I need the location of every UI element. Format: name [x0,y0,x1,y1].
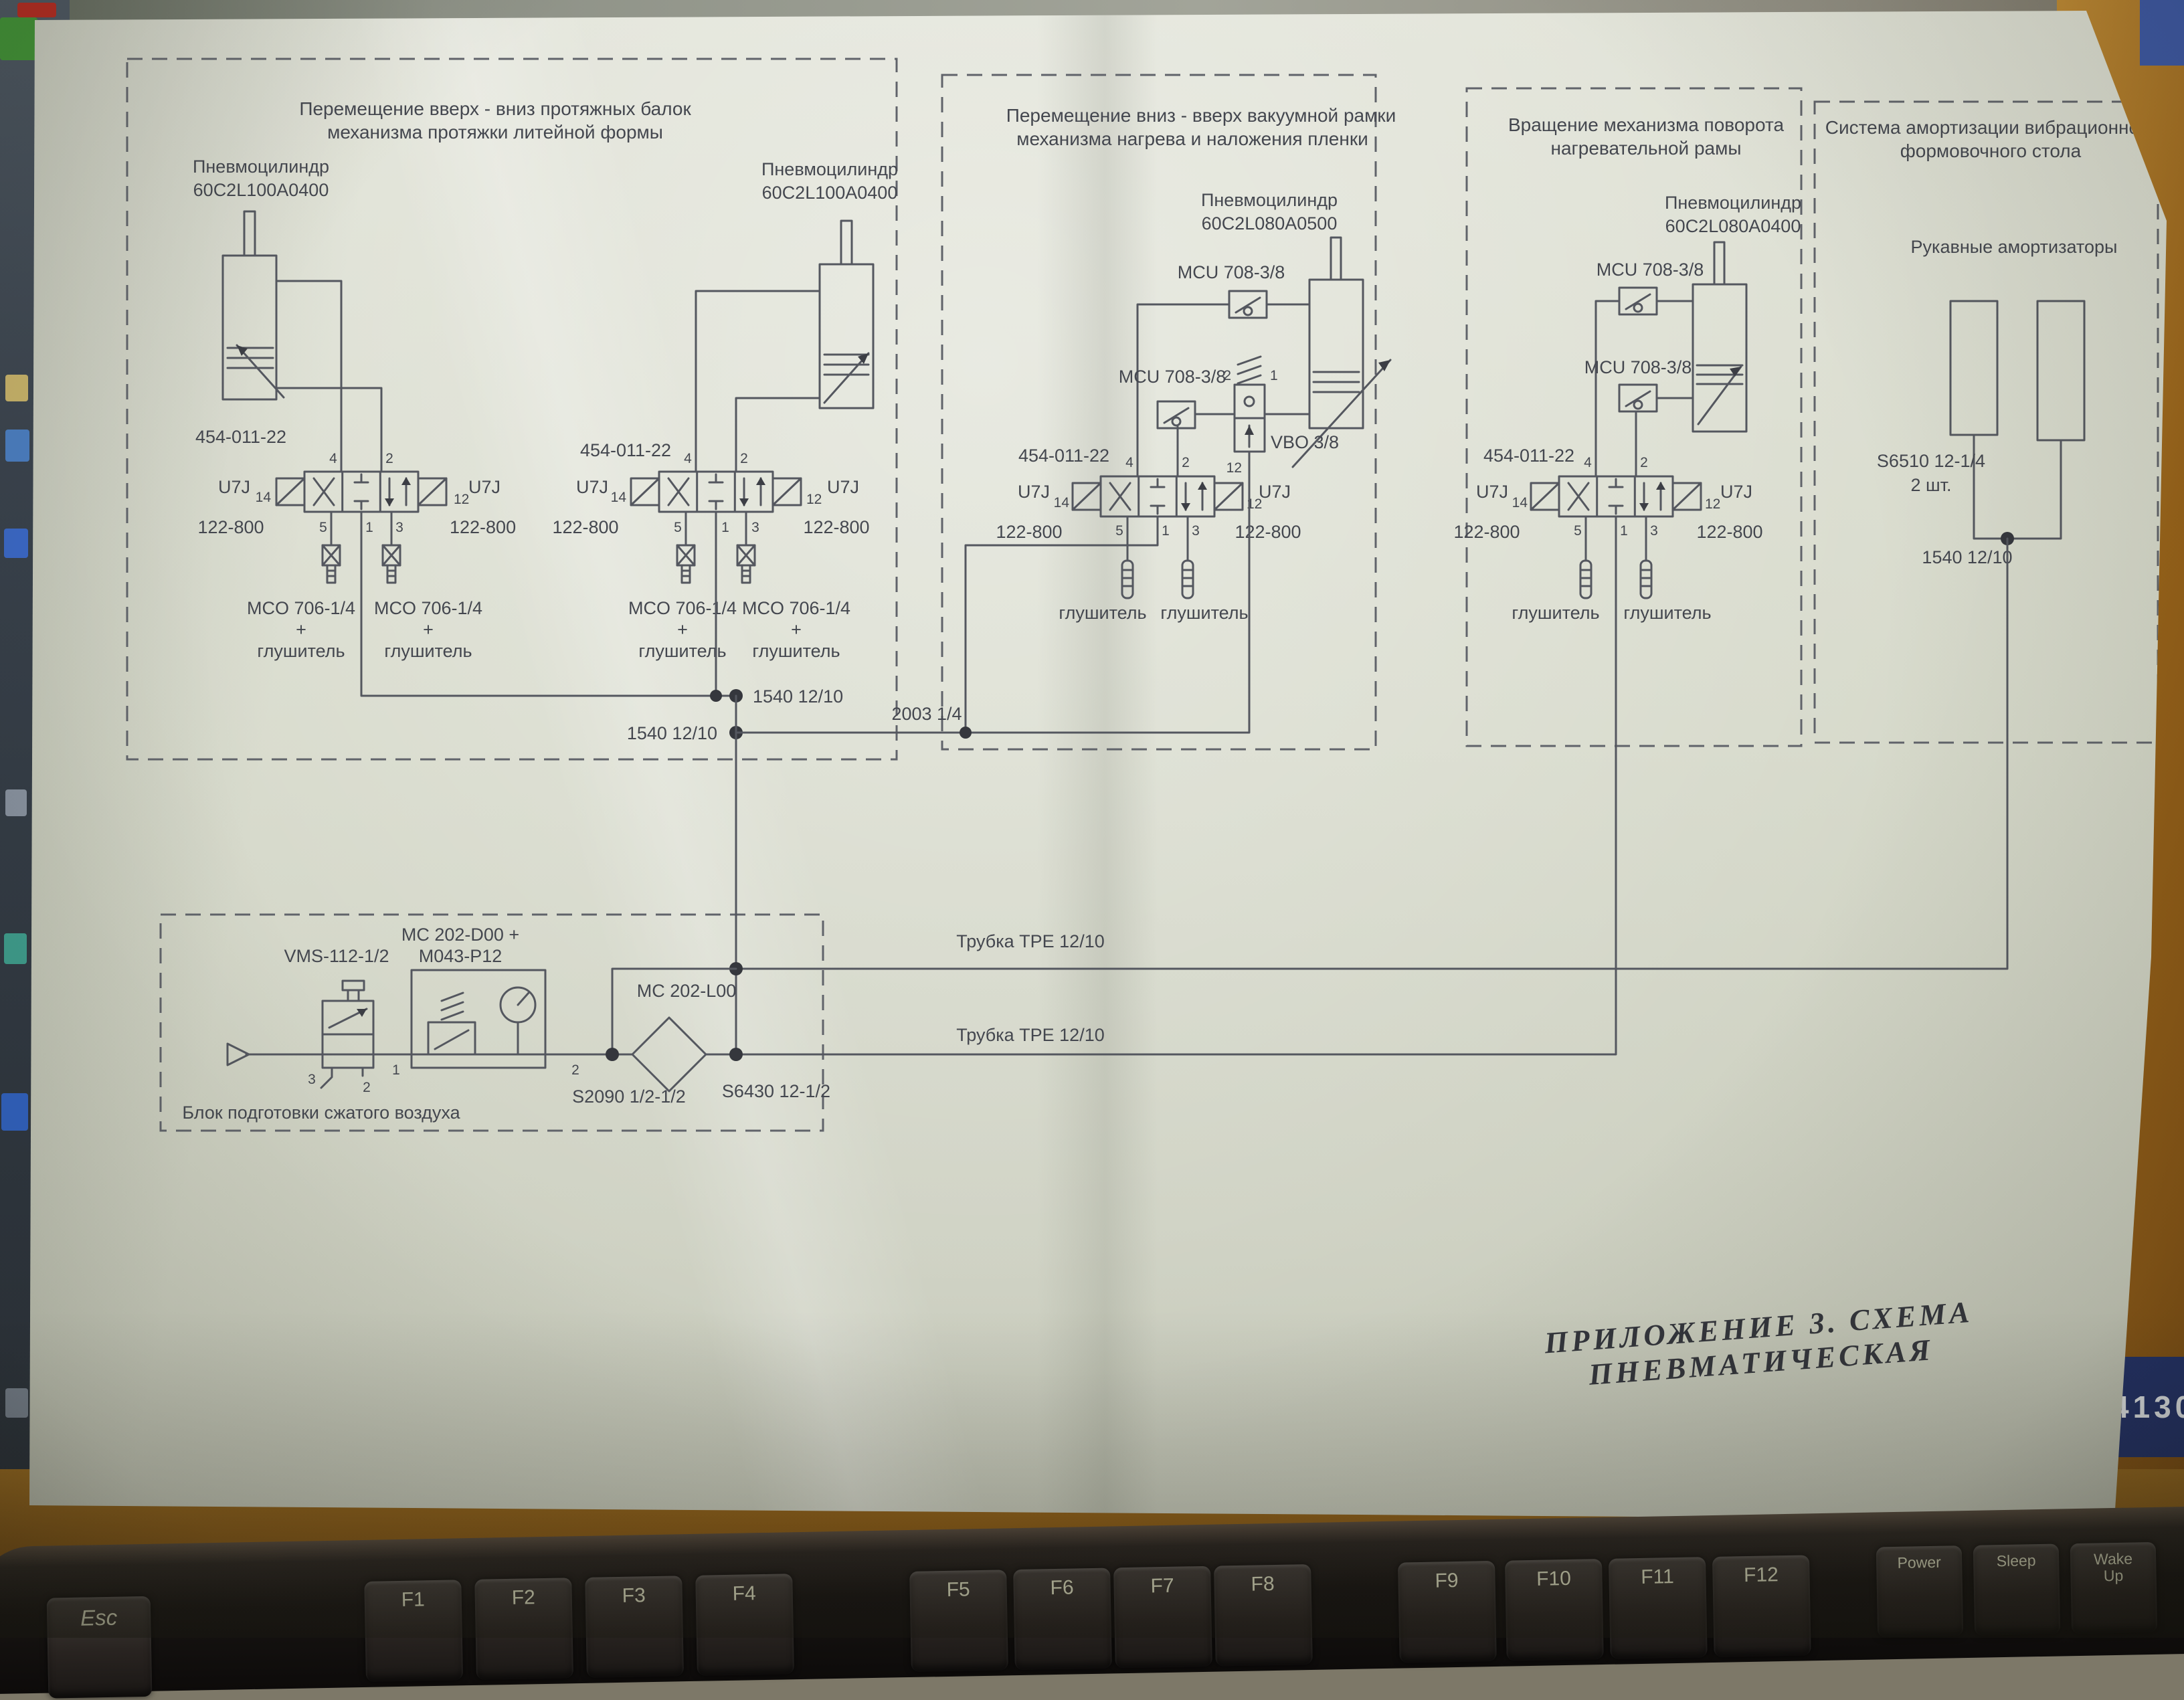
desktop-icon [4,933,27,964]
desktop-icon [5,375,28,401]
sleeve-damper-1 [1950,301,1997,435]
keyboard-key-f12: F12 [1712,1555,1811,1657]
desktop-icon [5,430,29,462]
mco-plus: + [423,620,434,640]
section4-title-line2: формовочного стола [1900,140,2082,161]
feed-1540-label-3: 1540 12/10 [1922,547,2012,567]
valve3-port3: 3 [1192,523,1200,539]
valve1-port14: 14 [256,490,272,505]
tube-tpe-upper-label: Трубка ТРЕ 12/10 [956,931,1104,951]
section2-title-line1: Перемещение вниз - вверх вакуумной рамки [1006,105,1396,126]
mco-muffler: глушитель [752,641,840,661]
valve4-port1: 1 [1620,523,1628,539]
mco-label: MCO 706-1/4 [628,598,737,618]
valve4-left-type: U7J [1476,482,1508,502]
tube-tpe-lower-label: Трубка ТРЕ 12/10 [956,1025,1104,1045]
s6430-label: S6430 12-1/2 [722,1081,830,1101]
valve1-left-type: U7J [218,477,250,497]
mc-d00-label-2: M043-P12 [419,946,503,966]
cylinder1-model: 60C2L100A0400 [193,180,329,200]
cushion-arrow-icon [1378,360,1390,371]
mc-l00-label: MC 202-L00 [637,981,737,1001]
vbo-port12: 12 [1226,460,1242,476]
arrow-up-icon [1245,426,1254,435]
valve4-port3: 3 [1650,523,1658,539]
keyboard-key-f8: F8 [1214,1564,1313,1667]
pneumatic-schematic: Перемещение вверх - вниз протяжных балок… [0,0,2184,1638]
valve2-right-type: U7J [827,477,859,497]
silencer-icon [383,545,400,583]
cylinder3-label: Пневмоцилиндр [1201,190,1338,210]
mco-plus: + [791,620,802,640]
wallpaper-blue-corner [2140,0,2184,66]
valve3-right-type: U7J [1259,482,1291,502]
vbo-valve [1235,357,1265,452]
mc-d00-label-1: MC 202-D00 + [401,925,519,945]
valve2-left-coil: 122-800 [552,517,618,537]
cylinder-2 [696,221,873,465]
keyboard-key-f6: F6 [1013,1568,1112,1670]
keyboard-key-esc: Esc [47,1596,153,1699]
valve1-part: 454-011-22 [195,427,286,447]
keyboard-key-f9: F9 [1398,1561,1497,1663]
valve4-port2: 2 [1640,455,1648,470]
feed-1540-label: 1540 12/10 [753,686,843,706]
section4-title-line1: Система амортизации вибрационного [1825,117,2156,138]
valve2-port2: 2 [740,451,748,466]
valve-u7j-4 [1531,470,1701,523]
valve2-port5: 5 [674,520,682,535]
valve-u7j-1 [276,465,446,518]
cylinder1-label: Пневмоцилиндр [193,157,329,177]
vms-port3: 3 [308,1072,316,1087]
mco-muffler: глушитель [257,641,345,661]
lubricator-mc202l00 [632,1018,706,1091]
muffler-label: глушитель [1160,603,1248,623]
muffler-label: глушитель [1623,603,1711,623]
keyboard-key-f5: F5 [909,1570,1008,1672]
mco-plus: + [677,620,688,640]
valve3-port14: 14 [1054,495,1070,510]
regulator-unit [412,970,545,1068]
valve1-left-coil: 122-800 [197,517,264,537]
valve2-port3: 3 [751,520,759,535]
section2-title-line2: механизма нагрева и наложения пленки [1016,128,1368,149]
valve4-port4: 4 [1584,455,1592,470]
damper-part-label: S6510 12-1/4 [1877,451,1985,471]
section3-title-line2: нагревательной рамы [1551,138,1742,159]
section3-title-line1: Вращение механизма поворота [1508,114,1784,135]
regulator-port2: 2 [571,1062,579,1078]
vms-valve [321,981,373,1088]
desktop-icon [5,789,27,816]
valve3-port2: 2 [1182,455,1190,470]
muffler-label: глушитель [1512,603,1599,623]
desktop-green-patch [0,17,37,60]
valve3-part: 454-011-22 [1018,446,1109,466]
vbo-port1: 1 [1270,368,1278,383]
keyboard-key-power: Power [1876,1545,1963,1637]
valve2-port4: 4 [684,451,692,466]
vms-label: VMS-112-1/2 [284,946,389,966]
cylinder4-label: Пневмоцилиндр [1665,193,1801,213]
desktop-icon [1,1093,28,1131]
valve4-left-coil: 122-800 [1453,522,1520,542]
silencer-icon [1122,561,1133,598]
valve-u7j-2 [631,465,801,518]
mco-label: MCO 706-1/4 [247,598,355,618]
valve1-port2: 2 [385,451,393,466]
mcu-upper-label: MCU 708-3/8 [1597,260,1704,280]
valve4-port12: 12 [1705,496,1720,512]
keyboard-key-f2: F2 [474,1578,573,1680]
keyboard-key-f11: F11 [1609,1557,1708,1659]
valve1-right-type: U7J [468,477,500,497]
keyboard-key-f10: F10 [1505,1559,1604,1661]
mcu-upper-label: MCU 708-3/8 [1178,262,1285,282]
silencer-icon [1641,561,1651,598]
desktop-icon [4,529,28,558]
valve4-port5: 5 [1574,523,1582,539]
dampers-label: Рукавные амортизаторы [1911,237,2118,257]
feed-1540-label-2: 1540 12/10 [627,723,717,743]
cylinder2-label: Пневмоцилиндр [761,159,898,179]
taskbar-red-icon [17,3,56,17]
valve4-right-type: U7J [1720,482,1752,502]
mco-label: MCO 706-1/4 [374,598,482,618]
valve3-left-type: U7J [1018,482,1050,502]
sleeve-damper-2 [2037,301,2084,440]
keyboard-key-f1: F1 [364,1580,463,1682]
feed-2003-label: 2003 1/4 [891,704,962,724]
cylinder3-model: 60C2L080A0500 [1202,213,1338,233]
damper-qty-label: 2 шт. [1910,475,1951,495]
valve1-port5: 5 [319,520,327,535]
valve1-port12: 12 [454,492,469,507]
valve4-port14: 14 [1512,495,1528,510]
airprep-title: Блок подготовки сжатого воздуха [182,1103,460,1123]
valve2-part: 454-011-22 [580,440,671,460]
flow-control-mcu-icon [1619,385,1657,411]
valve1-port3: 3 [395,520,403,535]
section2-box [942,75,1376,749]
valve4-part: 454-011-22 [1483,446,1574,466]
mco-muffler: глушитель [384,641,472,661]
silencer-icon [323,545,340,583]
keyboard-key-f7: F7 [1113,1566,1212,1669]
section4-box [1815,102,2158,743]
valve3-port4: 4 [1125,455,1133,470]
keyboard-key-f3: F3 [585,1576,684,1678]
silencer-icon [737,545,755,583]
silencer-icon [1182,561,1193,598]
keyboard-key-wakeup: Wake Up [2070,1542,2157,1634]
valve3-right-coil: 122-800 [1235,522,1301,542]
valve-u7j-3 [1073,470,1243,523]
regulator-port1: 1 [392,1062,400,1078]
valve2-port14: 14 [611,490,627,505]
vms-port2: 2 [363,1080,371,1095]
valve1-port1: 1 [365,520,373,535]
valve3-port5: 5 [1115,523,1123,539]
cylinder4-model: 60C2L080A0400 [1665,216,1801,236]
flow-control-mcu-icon [1619,288,1657,314]
keyboard-key-sleep: Sleep [1973,1544,2060,1636]
flow-control-mcu-icon [1229,291,1267,318]
valve1-port4: 4 [329,451,337,466]
vbo-port2: 2 [1223,368,1231,383]
section1-title-line1: Перемещение вверх - вниз протяжных балок [299,98,691,119]
valve1-right-coil: 122-800 [450,517,516,537]
muffler-label: глушитель [1059,603,1146,623]
valve4-right-coil: 122-800 [1696,522,1762,542]
desktop-icon [5,1388,28,1418]
mcu-lower-label: MCU 708-3/8 [1119,367,1226,387]
mco-label: MCO 706-1/4 [742,598,850,618]
mco-plus: + [296,620,306,640]
silencer-icon [677,545,695,583]
valve2-port12: 12 [806,492,822,507]
schematic-paper-sheet: Перемещение вверх - вниз протяжных балок… [0,0,2184,1638]
section1-title-line2: механизма протяжки литейной формы [327,122,663,143]
cylinder2-model: 60C2L100A0400 [762,183,898,203]
mco-muffler: глушитель [638,641,726,661]
valve3-left-coil: 122-800 [996,522,1062,542]
valve2-port1: 1 [721,520,729,535]
vbo-label: VBO 3/8 [1271,432,1339,452]
flow-control-mcu-icon [1158,401,1195,428]
silencer-icon [1580,561,1591,598]
valve2-right-coil: 122-800 [803,517,869,537]
valve3-port1: 1 [1162,523,1170,539]
mcu-lower-label: MCU 708-3/8 [1584,357,1692,377]
section3-box [1467,88,1801,746]
keyboard-key-f4: F4 [695,1574,794,1676]
valve2-left-type: U7J [576,477,608,497]
